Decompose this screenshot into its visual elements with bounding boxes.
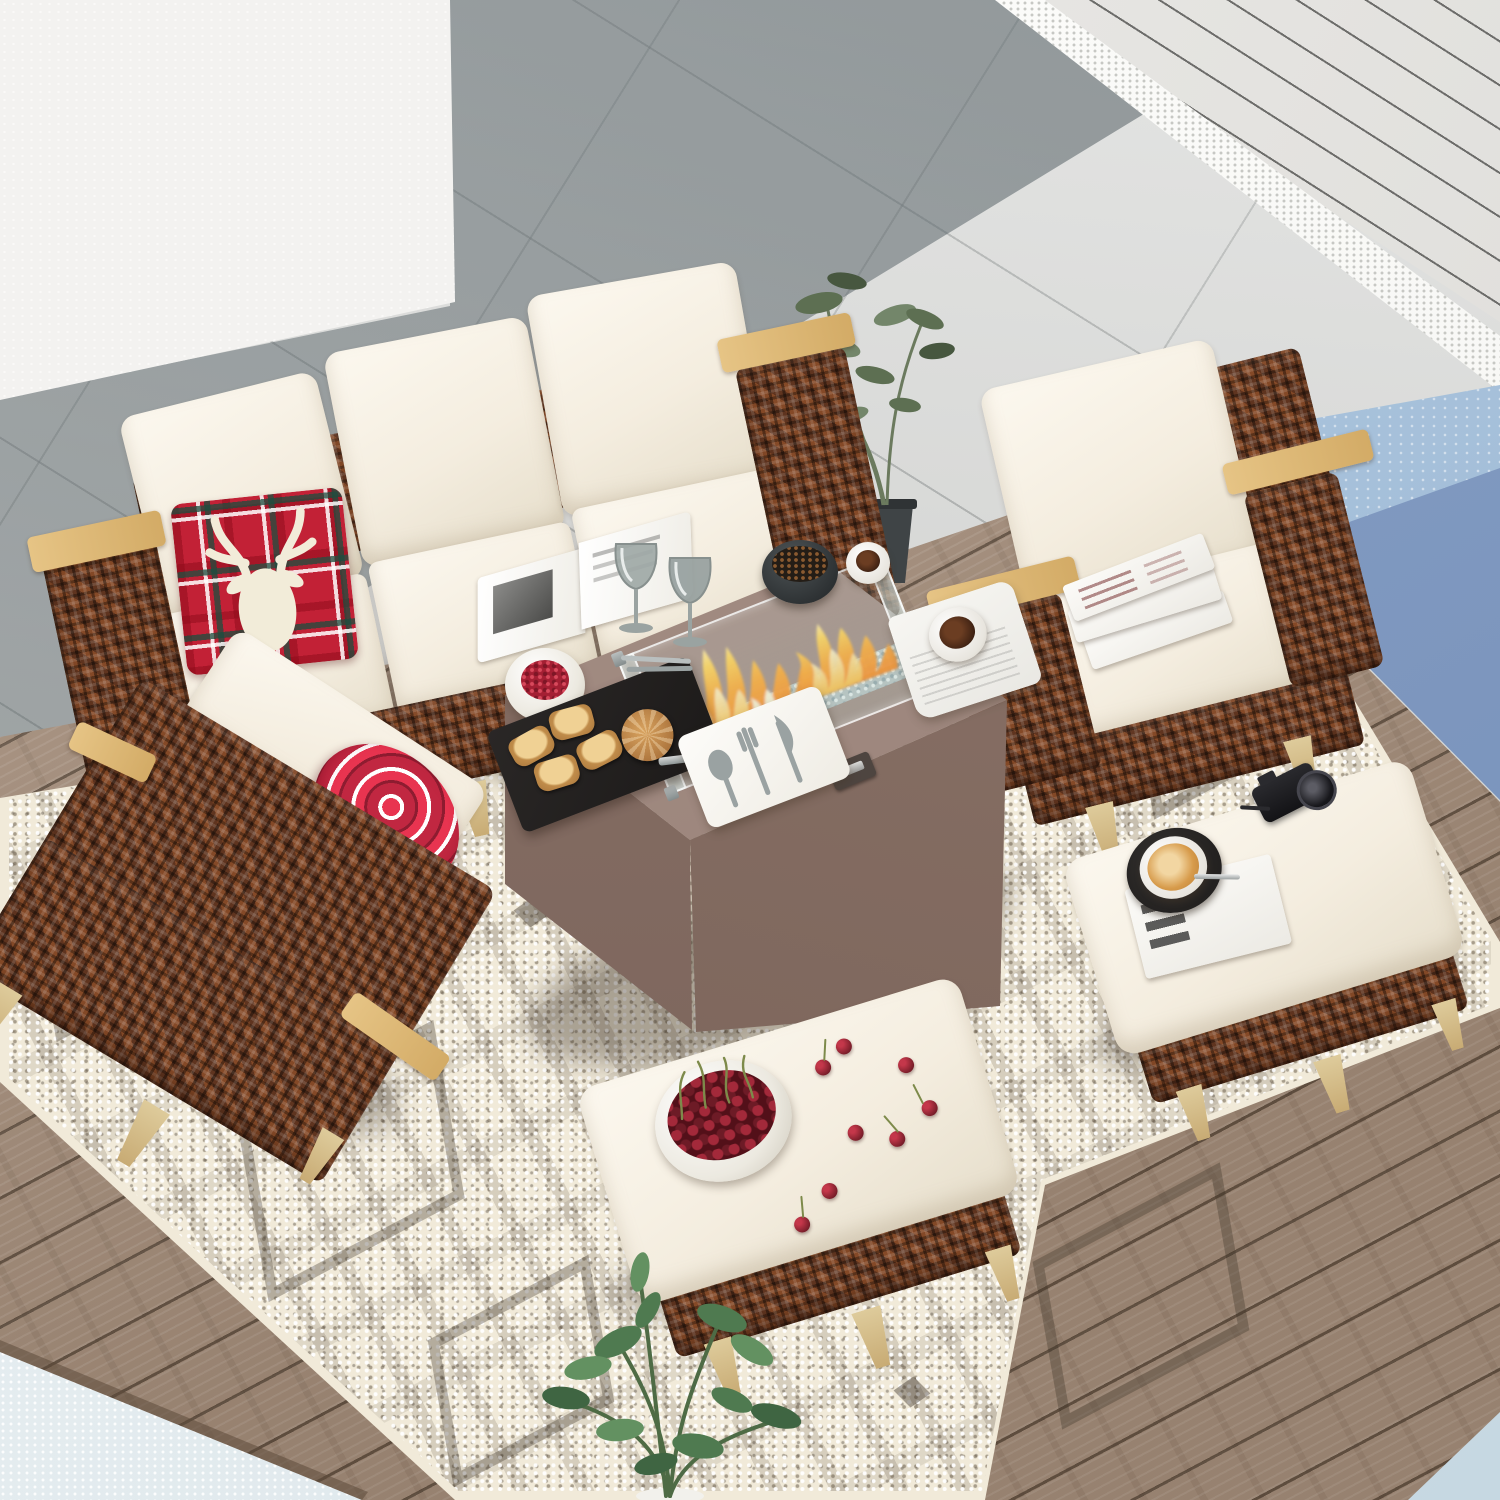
coffee-surface: [856, 550, 880, 572]
coffee-surface: [935, 612, 979, 654]
magazine-text: [1143, 549, 1188, 584]
coffee-beans: [772, 546, 828, 582]
camera-strap: [1240, 805, 1270, 811]
latte-art: [1141, 837, 1204, 897]
bean-bowl: [762, 540, 838, 604]
book-left-page: [478, 547, 586, 663]
plant-leaves: [541, 1251, 804, 1479]
white-cup: [846, 542, 890, 584]
latte-cup: [1132, 828, 1215, 907]
spoon: [1194, 874, 1240, 880]
foreground-plant: [470, 1250, 830, 1500]
foreground-plant-graphic: [470, 1250, 830, 1500]
wine-glasses: [608, 540, 720, 682]
book-photo: [493, 569, 553, 634]
patio-scene: [0, 0, 1500, 1500]
